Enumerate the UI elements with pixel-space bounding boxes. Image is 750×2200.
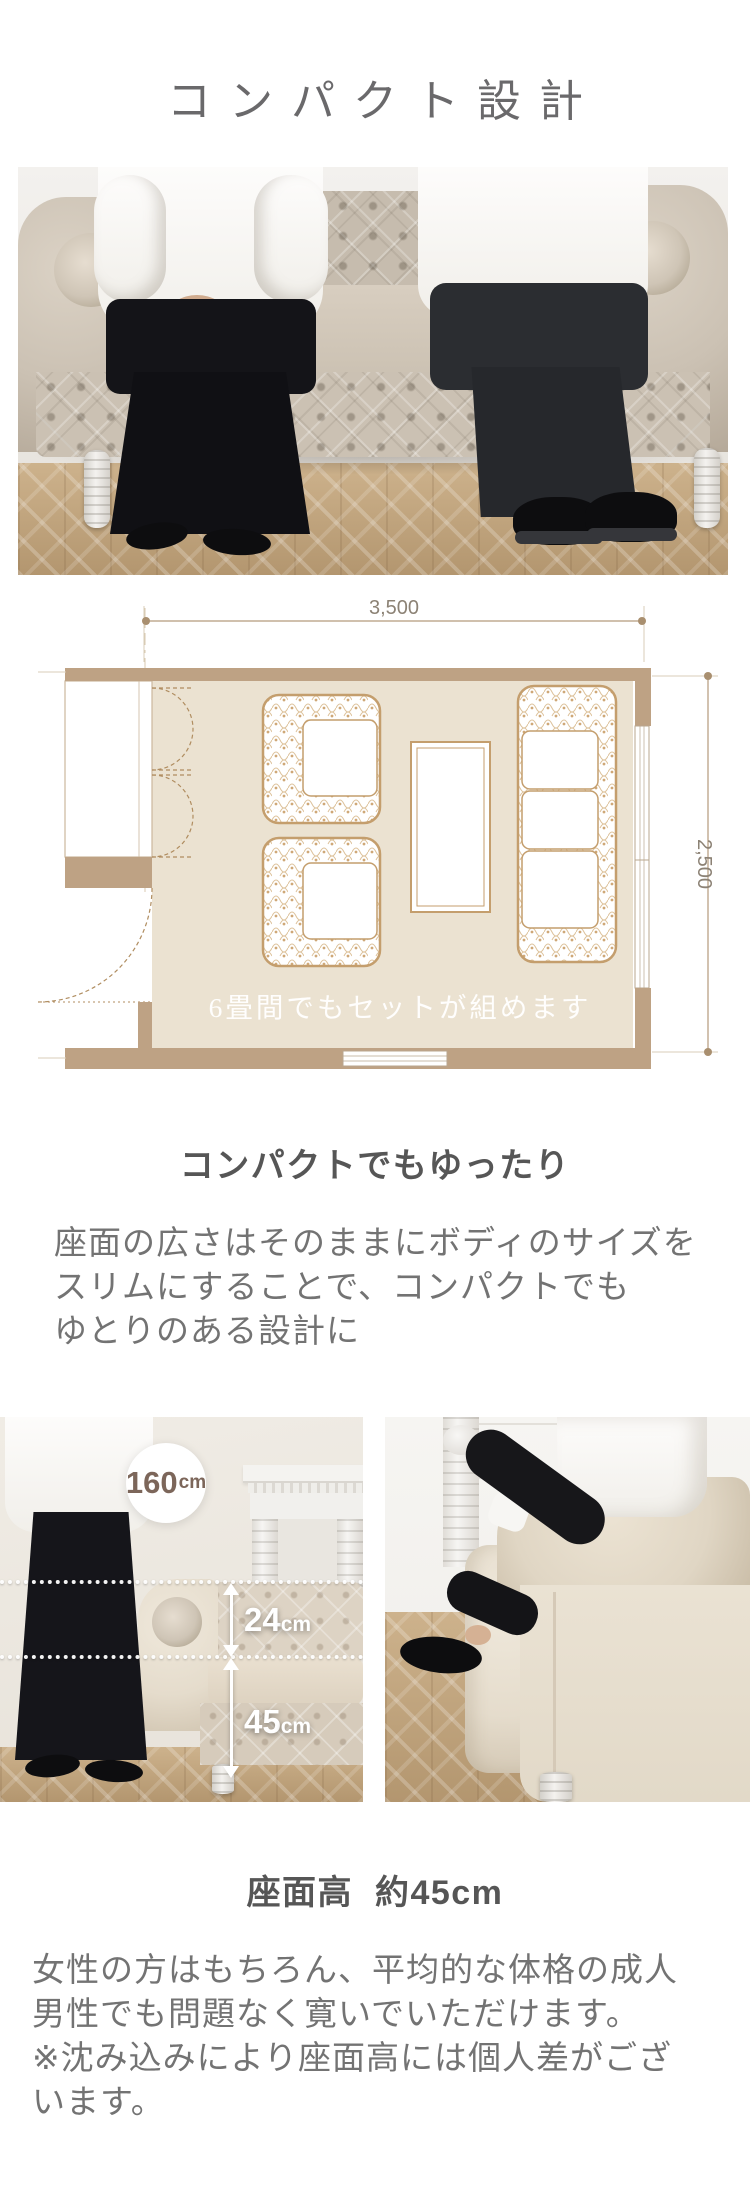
body-line: スリムにすることで、コンパクトでも [54,1265,697,1309]
seat-top-dotted-line [0,1655,363,1659]
floor-plan-diagram: 3,500 2,500 6畳間でもセットが組めます [0,600,750,1080]
plan-width-label: 3,500 [369,600,419,619]
plan-door-swing-arc [38,888,152,1002]
photo-sofa-side-closeup [385,1417,750,1802]
man-sneaker-sole-right [587,528,677,541]
sofa-leg [540,1772,572,1802]
person-ankle [465,1625,491,1645]
seat-height-heading: 座面高 約45cm [0,1865,750,1914]
person-height-value: 160 [126,1465,178,1501]
plan-bottom-window [343,1051,447,1066]
plan-caption: 6畳間でもセットが組めます [209,992,592,1023]
woman-wide-pants [15,1512,147,1760]
back-height-arrow-line [230,1587,233,1653]
seat-height-label: 45cm [244,1704,311,1745]
sofa-arm-curl [152,1597,202,1647]
mantel-dentil-molding [248,1483,363,1493]
backrest-top-dotted-line [0,1580,363,1584]
sofa-front-right-leg [694,448,720,528]
person-height-unit: cm [179,1472,206,1494]
person-height-badge: 160cm [126,1443,206,1523]
plan-sofa [518,686,616,962]
photo-two-people-on-sofa [18,167,728,575]
seat-height-arrowhead-bottom [223,1766,239,1778]
sofa-seam-line [553,1592,556,1792]
back-height-arrowhead-top [223,1583,239,1595]
compact-section-body: 座面の広さはそのままにボディのサイズを スリムにすることで、コンパクトでも ゆと… [54,1221,697,1353]
photo-seat-height-measurement: 160cm 24cm 45cm [0,1417,363,1802]
body-line: います。 [32,2080,678,2124]
plan-armchair-1 [263,695,380,823]
seat-height-body: 女性の方はもちろん、平均的な体格の成人 男性でも問題なく寛いでいただけます。 ※… [32,1948,678,2124]
plan-center-table [411,742,490,912]
sofa-front-left-leg [84,450,110,528]
back-height-arrowhead-bottom [223,1645,239,1657]
body-line: 座面の広さはそのままにボディのサイズを [54,1221,697,1265]
back-height-value: 24 [244,1601,281,1638]
page-title: コンパクト設計 [0,76,750,128]
body-line: ゆとりのある設計に [54,1309,697,1353]
plan-left-wall-block [65,857,152,888]
plan-right-wall-top [635,668,651,726]
body-line: 男性でも問題なく寛いでいただけます。 [32,1992,678,2036]
back-height-unit: cm [281,1613,311,1636]
seat-height-unit: cm [281,1715,311,1738]
body-line: ※沈み込みにより座面高には個人差がござ [32,2036,678,2080]
woman-puff-sleeve-right [254,175,328,303]
back-height-label: 24cm [244,1602,311,1643]
plan-armchair-2 [263,838,380,966]
body-line: 女性の方はもちろん、平均的な体格の成人 [32,1948,678,1992]
compact-section-heading: コンパクトでもゆったり [0,1138,750,1187]
seat-height-arrow-line [230,1662,233,1774]
product-page: コンパクト設計 [0,0,750,2200]
woman-puff-sleeve-left [94,175,166,303]
plan-right-wall-bottom [635,988,651,1048]
woman-pants-legs [110,372,310,534]
plan-top-wall [65,668,651,681]
plan-width-dimension: 3,500 [142,600,646,662]
plan-height-label: 2,500 [693,839,715,889]
plan-left-wall-strip [138,1002,152,1048]
seat-height-value: 45 [244,1703,281,1740]
plan-right-window [635,726,649,988]
mantel-shelf [243,1465,363,1483]
mantel-frieze [250,1493,363,1519]
seat-height-arrowhead-top [223,1658,239,1670]
